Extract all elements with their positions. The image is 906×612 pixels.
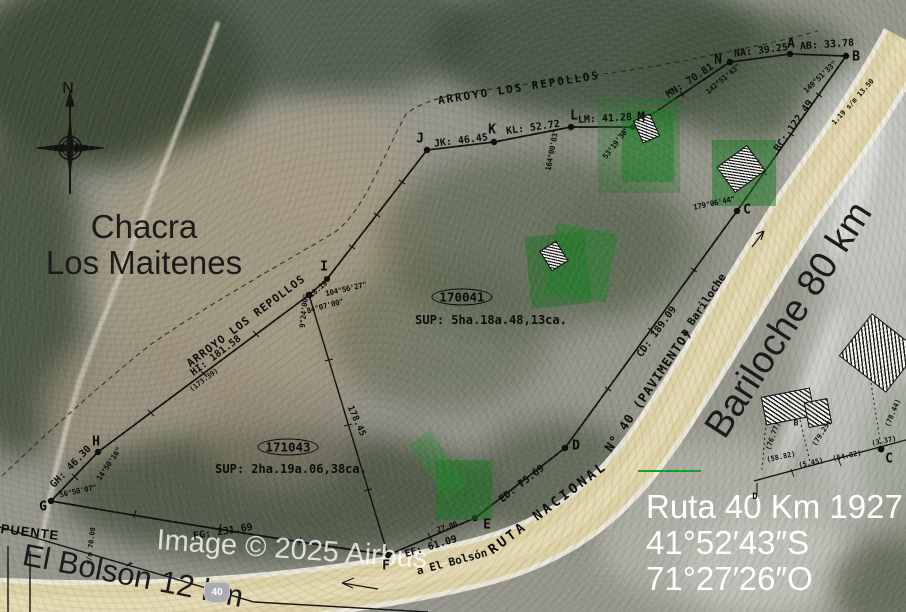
compass-rose [36,92,104,194]
green-highlight-line [638,470,701,472]
point-label-f: F [382,559,390,574]
route-shield-number: 40 [211,587,222,598]
route-shield-40: 40 [204,582,230,603]
region-label-chacra-line2: Los Maitenes [46,244,242,282]
point-label-c: C [743,203,751,218]
parcel-area-170041: SUP: 5ha.18a.48,13ca. [415,313,567,327]
info-overlay-line3: 71°27′26″O [646,561,813,597]
aerial-survey-map: Chacra Los Maitenes Bariloche 80 km El B… [0,0,906,612]
parcel-id-171043: 171043 [257,439,318,456]
point-label-d: D [572,439,580,454]
info-overlay-line2: 41°52′43″S [646,525,809,561]
point-label-e: E [483,518,491,533]
point-label-i: I [320,260,328,275]
point-label-b2: B [794,419,799,428]
point-label-h: H [92,435,100,450]
point-label-g: G [39,500,47,515]
point-label-a: A [787,37,795,52]
region-label-chacra-line1: Chacra [91,208,197,246]
point-label-d2: D [752,492,757,502]
point-label-b: B [852,50,860,65]
point-label-c2: C [885,452,893,467]
parcel-area-171043: SUP: 2ha.19a.06,38ca. [215,462,367,476]
point-label-k: K [488,123,496,138]
parcel-id-170041: 170041 [431,289,492,306]
point-label-n: N [714,53,722,68]
compass-north-label: N [62,80,74,98]
point-label-m: M [637,111,645,126]
point-label-j: J [416,132,424,147]
info-overlay-line1: Ruta 40 Km 1927 [646,489,903,525]
